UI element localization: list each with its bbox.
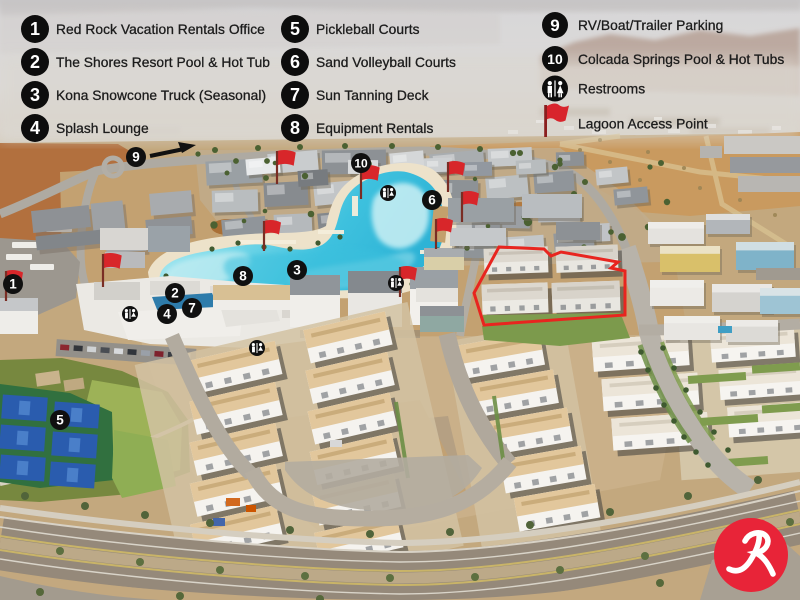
svg-text:8: 8 [290,118,300,138]
svg-text:Lagoon Access Point: Lagoon Access Point [578,117,708,132]
svg-text:9: 9 [550,16,560,35]
svg-text:7: 7 [290,85,300,105]
svg-text:7: 7 [188,301,196,316]
svg-text:2: 2 [30,52,40,72]
svg-text:4: 4 [163,307,171,322]
svg-text:Red Rock Vacation Rentals Offi: Red Rock Vacation Rentals Office [56,22,265,37]
svg-text:8: 8 [239,269,247,284]
svg-text:Kona Snowcone Truck (Seasonal): Kona Snowcone Truck (Seasonal) [56,88,266,103]
svg-text:3: 3 [30,85,40,105]
svg-text:10: 10 [354,157,368,171]
svg-text:Equipment Rentals: Equipment Rentals [316,121,433,136]
svg-text:1: 1 [30,19,40,39]
svg-text:RV/Boat/Trailer Parking: RV/Boat/Trailer Parking [578,18,723,33]
svg-text:9: 9 [132,150,140,165]
svg-text:10: 10 [547,51,563,67]
svg-text:Sand Volleyball Courts: Sand Volleyball Courts [316,55,456,70]
svg-text:1: 1 [9,277,17,292]
svg-text:5: 5 [56,413,64,428]
svg-text:6: 6 [290,52,300,72]
svg-text:Restrooms: Restrooms [578,82,645,97]
svg-text:Pickleball Courts: Pickleball Courts [316,22,420,37]
svg-text:3: 3 [293,263,301,278]
svg-text:Colcada Springs Pool & Hot Tub: Colcada Springs Pool & Hot Tubs [578,52,784,67]
svg-text:4: 4 [30,118,40,138]
svg-text:5: 5 [290,19,300,39]
svg-text:Splash Lounge: Splash Lounge [56,121,149,136]
svg-text:Sun Tanning Deck: Sun Tanning Deck [316,88,429,103]
svg-text:The Shores Resort Pool & Hot T: The Shores Resort Pool & Hot Tub [56,55,270,70]
svg-text:6: 6 [428,193,436,208]
svg-text:2: 2 [171,286,179,301]
